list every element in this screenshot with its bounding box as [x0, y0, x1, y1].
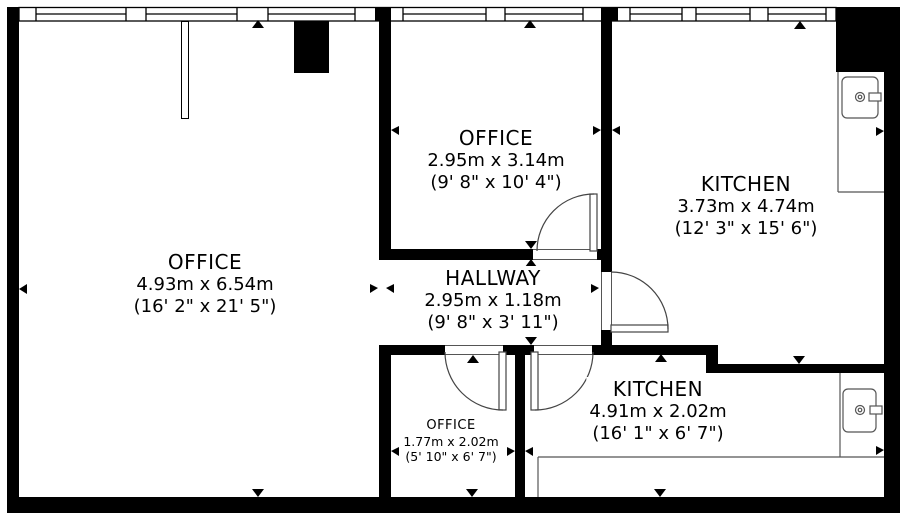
room-label-kitchen-bottom: KITCHEN 4.91m x 2.02m (16' 1" x 6' 7"): [586, 377, 729, 445]
room-label-office-main: OFFICE 4.93m x 6.54m (16' 2" x 21' 5"): [131, 250, 280, 318]
room-name: KITCHEN: [675, 172, 818, 196]
room-imperial: (12' 3" x 15' 6"): [675, 218, 818, 240]
room-metric: 4.91m x 2.02m: [589, 401, 726, 423]
room-metric: 2.95m x 3.14m: [427, 150, 564, 172]
room-imperial: (5' 10" x 6' 7"): [403, 449, 498, 464]
door-kitchen-bottom: [531, 352, 593, 410]
window-pier-kitchen: [601, 7, 618, 21]
room-imperial: (16' 1" x 6' 7"): [589, 423, 726, 445]
window-pier-office: [375, 7, 391, 21]
room-label-kitchen-top: KITCHEN 3.73m x 4.74m (12' 3" x 15' 6"): [672, 172, 821, 240]
room-name: OFFICE: [134, 250, 277, 274]
room-imperial: (16' 2" x 21' 5"): [134, 296, 277, 318]
room-metric: 2.95m x 1.18m: [424, 290, 561, 312]
room-name: KITCHEN: [589, 377, 726, 401]
window-band: [19, 7, 836, 21]
room-label-hallway: HALLWAY 2.95m x 1.18m (9' 8" x 3' 11"): [421, 266, 564, 334]
sink-icon-top: [842, 77, 881, 118]
room-name: OFFICE: [427, 126, 564, 150]
sink-icon-bottom: [843, 389, 882, 432]
room-metric: 3.73m x 4.74m: [675, 196, 818, 218]
room-imperial: (9' 8" x 3' 11"): [424, 312, 561, 334]
room-imperial: (9' 8" x 10' 4"): [427, 172, 564, 194]
room-name: HALLWAY: [424, 266, 561, 290]
room-metric: 1.77m x 2.02m: [403, 434, 498, 449]
door-office-top: [537, 194, 597, 251]
room-label-office-top: OFFICE 2.95m x 3.14m (9' 8" x 10' 4"): [424, 126, 567, 194]
door-kitchen-top: [611, 272, 668, 332]
floor-plan: OFFICE 4.93m x 6.54m (16' 2" x 21' 5") O…: [0, 0, 903, 519]
room-name: OFFICE: [403, 418, 498, 434]
room-metric: 4.93m x 6.54m: [134, 274, 277, 296]
room-label-office-small: OFFICE 1.77m x 2.02m (5' 10" x 6' 7"): [400, 418, 501, 464]
